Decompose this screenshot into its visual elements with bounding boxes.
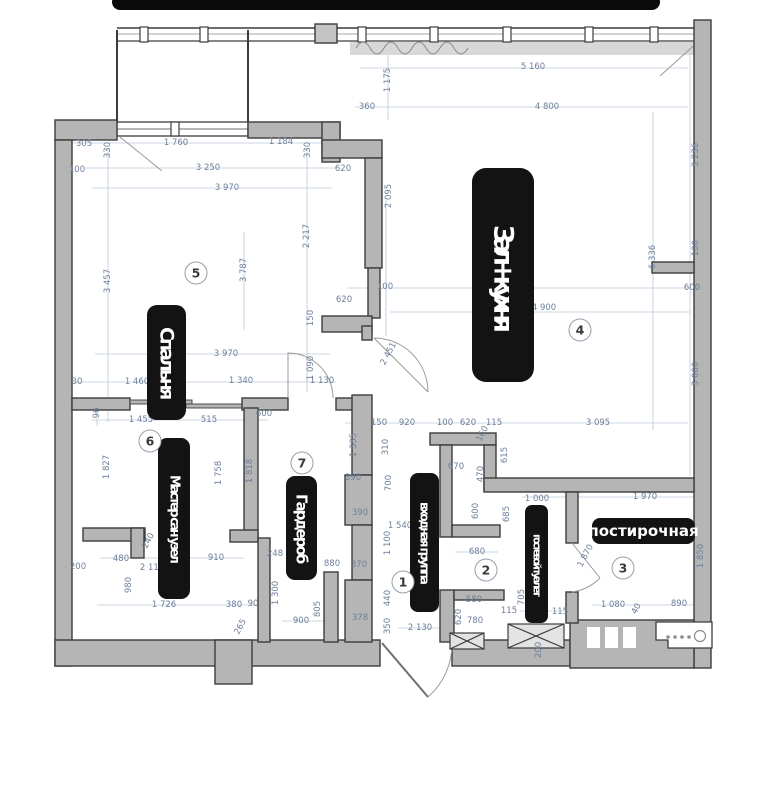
room-name-label: входная группа bbox=[410, 473, 439, 612]
dimension-label: 3 250 bbox=[196, 164, 220, 173]
dimension-label: 1 970 bbox=[633, 493, 657, 502]
dimension-label: 1 335 bbox=[350, 433, 359, 457]
room-number-marker: 4 bbox=[569, 319, 592, 342]
dimension-label: 480 bbox=[113, 555, 129, 564]
dimension-label: 1 340 bbox=[229, 377, 253, 386]
dimension-label: 680 bbox=[469, 548, 485, 557]
dimension-label: 1 760 bbox=[164, 139, 188, 148]
balcony-door-leaf bbox=[120, 137, 162, 171]
facade-pillar bbox=[315, 24, 337, 43]
dimension-label: 150 bbox=[371, 419, 387, 428]
dimension-label: 1 000 bbox=[525, 495, 549, 504]
dimension-label: 920 bbox=[399, 419, 415, 428]
dimension-label: 150 bbox=[307, 310, 316, 326]
dimension-label: 580 bbox=[466, 596, 482, 605]
room-name-label: Спальня bbox=[147, 305, 186, 420]
dimension-label: 4 900 bbox=[532, 304, 556, 313]
dimension-label: 1 818 bbox=[246, 459, 255, 483]
wall-bottom-protrusion bbox=[215, 640, 252, 684]
dimension-label: 1 827 bbox=[103, 455, 112, 479]
window-mullions bbox=[140, 27, 658, 42]
balcony bbox=[117, 30, 248, 171]
dimension-label: 370 bbox=[351, 561, 367, 570]
dimension-label: 1 090 bbox=[307, 356, 316, 380]
dimension-label: 3 236 bbox=[692, 143, 701, 167]
dimension-label: 1 100 bbox=[384, 531, 393, 555]
dimension-label: 115 bbox=[501, 607, 517, 616]
dimension-label: 3 457 bbox=[104, 269, 113, 293]
dimension-label: 700 bbox=[385, 475, 394, 491]
dimension-label: 980 bbox=[125, 577, 134, 593]
room-number-marker: 6 bbox=[139, 430, 162, 453]
dimension-label: 1 184 bbox=[269, 138, 293, 147]
dimension-label: 3 970 bbox=[214, 350, 238, 359]
room-number-marker: 5 bbox=[185, 262, 208, 285]
dimension-label: 900 bbox=[293, 617, 309, 626]
dimension-label: 350 bbox=[384, 618, 393, 634]
laundry-door-arc bbox=[572, 578, 600, 592]
dimension-label: 330 bbox=[104, 142, 113, 158]
dimension-label: 3 787 bbox=[240, 258, 249, 282]
dimension-label: 880 bbox=[324, 560, 340, 569]
floor-plan-drawing bbox=[0, 0, 762, 800]
dimension-label: 115 bbox=[486, 419, 502, 428]
dimension-label: 96 bbox=[93, 408, 102, 419]
dimension-label: 620 bbox=[460, 419, 476, 428]
wall-right-outer bbox=[694, 20, 711, 668]
dimension-label: 100 bbox=[437, 419, 453, 428]
dimension-label: 380 bbox=[226, 601, 242, 610]
dimension-label: 1 460 bbox=[125, 378, 149, 387]
wall-shaft-right bbox=[324, 572, 338, 642]
entrance-cabinet bbox=[450, 633, 484, 649]
dimension-label: 620 bbox=[336, 296, 352, 305]
dimension-label: 470 bbox=[477, 466, 486, 482]
hall-door-leaf bbox=[374, 338, 428, 392]
room-number-marker: 3 bbox=[612, 557, 635, 580]
dimension-label: 115 bbox=[552, 608, 568, 617]
wall-toilet-laundry-upper bbox=[566, 492, 578, 543]
dimension-label: 685 bbox=[503, 506, 512, 522]
dimension-label: 600 bbox=[472, 503, 481, 519]
room-number-marker: 7 bbox=[291, 452, 314, 475]
dimension-label: 1 175 bbox=[384, 68, 393, 92]
wall-left-outer bbox=[55, 140, 72, 666]
dimension-label: 440 bbox=[384, 590, 393, 606]
room-number-marker: 1 bbox=[392, 571, 415, 594]
dimension-label: 3 095 bbox=[586, 419, 610, 428]
dimension-label: 620 bbox=[335, 165, 351, 174]
dimension-label: 600 bbox=[684, 284, 700, 293]
dimension-label: 390 bbox=[345, 474, 361, 483]
floor-plan-page: 5 1601 1753604 8003 2363053301 7601 1843… bbox=[0, 0, 762, 800]
dimension-label: 1 850 bbox=[697, 544, 706, 568]
wall-kitchen-stub bbox=[652, 262, 694, 273]
dimension-label: 100 bbox=[69, 166, 85, 175]
dimension-label: 780 bbox=[467, 617, 483, 626]
dimension-label: 200 bbox=[535, 642, 544, 658]
room-name-label: постирочная bbox=[592, 518, 695, 544]
entrance-door-arc bbox=[428, 643, 452, 697]
room-name-label: Гардероб bbox=[286, 476, 317, 580]
dimension-label: 30 bbox=[72, 378, 83, 387]
laundry-machines bbox=[587, 627, 636, 648]
dimension-label: 90 bbox=[248, 600, 259, 609]
dimension-label: 910 bbox=[208, 554, 224, 563]
dimension-label: 1 758 bbox=[215, 461, 224, 485]
dimension-label: 805 bbox=[314, 601, 323, 617]
dimension-label: 310 bbox=[382, 439, 391, 455]
dimension-label: 1 080 bbox=[601, 601, 625, 610]
wall-top-left-block bbox=[55, 120, 117, 140]
wall-kitchen-south bbox=[484, 478, 694, 492]
dimension-label: 248 bbox=[267, 550, 283, 559]
dimension-label: 3 000 bbox=[692, 362, 701, 386]
entrance-door-leaf bbox=[382, 643, 428, 697]
dimension-label: 305 bbox=[76, 140, 92, 149]
dimension-label: 4 800 bbox=[535, 103, 559, 112]
dimension-label: 600 bbox=[256, 410, 272, 419]
dimension-label: 6 336 bbox=[649, 245, 658, 269]
dimension-label: 5 160 bbox=[521, 63, 545, 72]
room-name-label: гостевой туалет bbox=[525, 505, 548, 623]
room-number-marker: 2 bbox=[475, 559, 498, 582]
dimension-label: 330 bbox=[304, 142, 313, 158]
dimension-label: 1 540 bbox=[388, 522, 412, 531]
dimension-label: 100 bbox=[377, 283, 393, 292]
dimension-label: 100 bbox=[692, 240, 701, 256]
wall-bedroom-hall bbox=[365, 158, 382, 268]
dimension-label: 620 bbox=[455, 609, 464, 625]
sliding-door-leaf-2 bbox=[186, 404, 244, 408]
dimension-label: 390 bbox=[352, 509, 368, 518]
room-name-label: Мастер сан узел bbox=[158, 438, 190, 599]
dimension-label: 515 bbox=[201, 416, 217, 425]
dimension-label: 1 726 bbox=[152, 601, 176, 610]
dimension-label: 200 bbox=[70, 563, 86, 572]
dimension-label: 670 bbox=[448, 463, 464, 472]
dimension-label: 360 bbox=[359, 103, 375, 112]
dimension-label: 2 217 bbox=[303, 224, 312, 248]
dimension-label: 615 bbox=[501, 447, 510, 463]
dimension-label: 3 970 bbox=[215, 184, 239, 193]
dimension-label: 378 bbox=[352, 614, 368, 623]
dimension-label: 1 300 bbox=[272, 581, 281, 605]
room-name-label: Зал + кухня bbox=[472, 168, 534, 382]
dimension-label: 2 130 bbox=[408, 624, 432, 633]
dimension-label: 2 095 bbox=[385, 184, 394, 208]
dimension-label: 890 bbox=[671, 600, 687, 609]
